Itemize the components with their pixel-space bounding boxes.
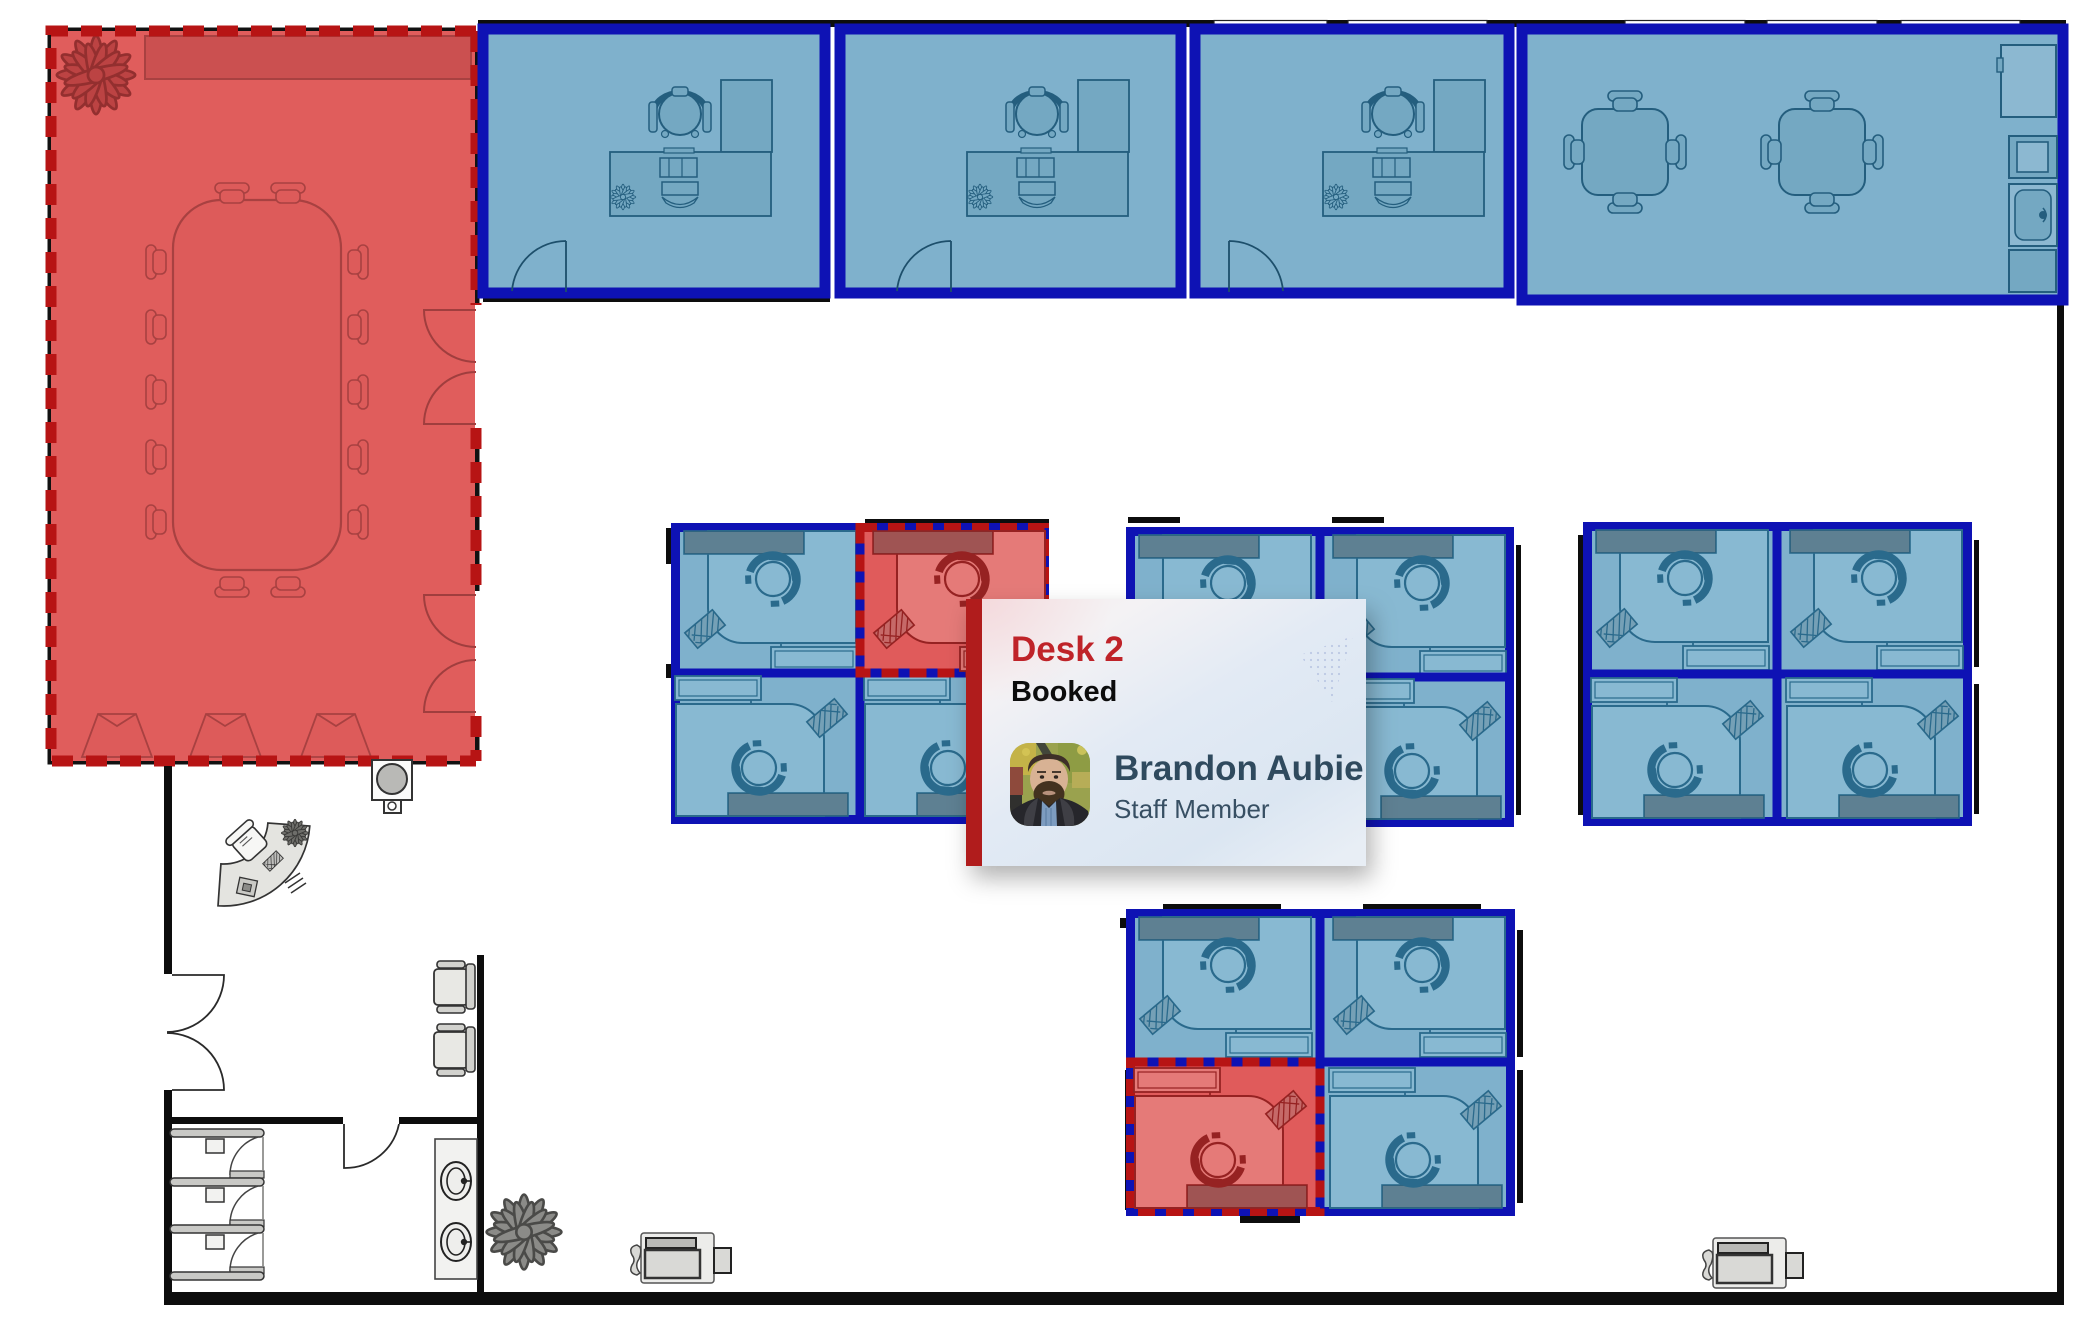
svg-text:Booked: Booked (1011, 676, 1117, 708)
svg-text:Desk 2: Desk 2 (1011, 630, 1124, 669)
svg-text:Staff Member: Staff Member (1114, 794, 1270, 824)
svg-text:Brandon Aubie: Brandon Aubie (1114, 749, 1364, 788)
